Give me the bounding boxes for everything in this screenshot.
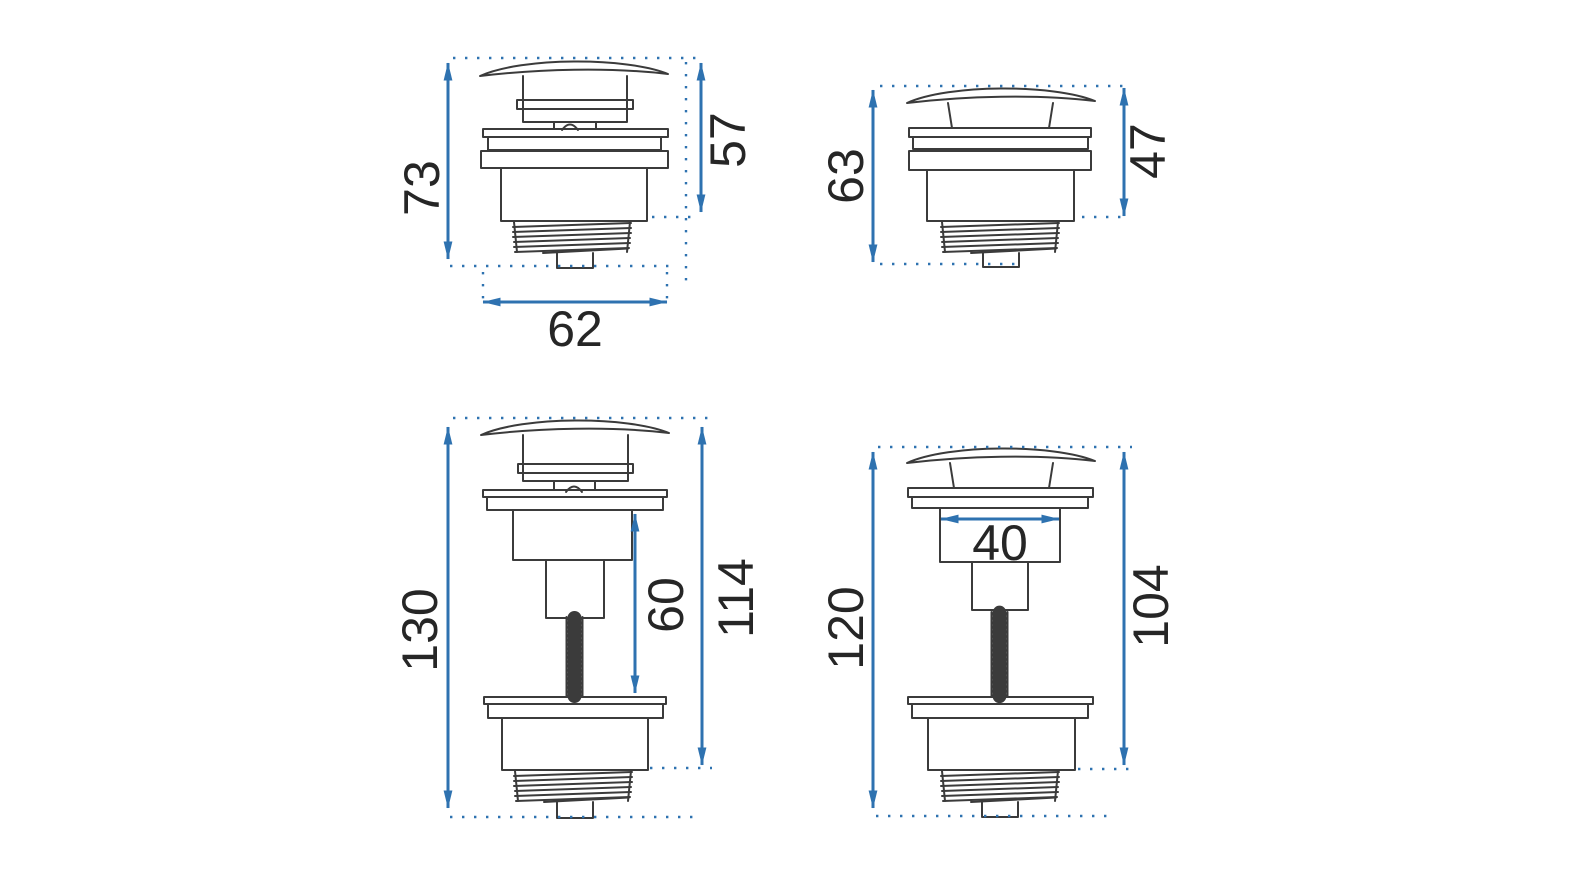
drawing-top-left: 73 57 62 bbox=[394, 58, 756, 357]
cap-dome bbox=[481, 420, 669, 435]
lower-flange-plate-2 bbox=[488, 704, 663, 718]
bottom-tab bbox=[557, 253, 593, 268]
flange-plate-1 bbox=[483, 129, 668, 137]
cap-cylinder bbox=[523, 435, 628, 481]
upper-body bbox=[513, 510, 632, 560]
threaded-stem bbox=[567, 617, 583, 697]
flange-plate-2 bbox=[488, 137, 661, 150]
dim-label-width: 62 bbox=[547, 301, 603, 357]
drawing-bottom-right: 120 40 104 bbox=[818, 447, 1179, 817]
dim-label-total-height: 63 bbox=[818, 148, 874, 204]
lower-housing bbox=[502, 718, 648, 770]
flange-plate-1 bbox=[909, 128, 1091, 137]
guide-lines-top-left bbox=[450, 58, 697, 301]
cap-cylinder bbox=[948, 103, 1053, 128]
bottom-tab bbox=[982, 802, 1018, 817]
screw-thread bbox=[941, 222, 1059, 253]
threaded-stem bbox=[992, 612, 1008, 697]
screw-thread bbox=[513, 222, 631, 253]
cap-dome bbox=[480, 61, 668, 76]
valve-housing bbox=[501, 168, 647, 221]
flange-plate-3 bbox=[909, 151, 1091, 170]
screw-thread bbox=[514, 771, 632, 802]
dim-label-upper-height: 114 bbox=[708, 558, 764, 638]
dim-label-upper-height: 47 bbox=[1120, 123, 1176, 179]
cap-ring bbox=[517, 100, 633, 109]
valve-body-top-right bbox=[907, 88, 1095, 267]
upper-flange-plate-2 bbox=[487, 497, 663, 510]
technical-drawing-page: 73 57 62 63 47 bbox=[0, 0, 1572, 877]
bottom-tab bbox=[557, 802, 593, 818]
cap-dome bbox=[907, 88, 1095, 103]
valve-body-bottom-right bbox=[907, 448, 1095, 817]
technical-drawing-canvas: 73 57 62 63 47 bbox=[0, 0, 1572, 877]
dim-label-upper-height: 104 bbox=[1123, 564, 1179, 647]
drawing-top-right: 63 47 bbox=[818, 86, 1176, 267]
dim-label-stem-length: 60 bbox=[638, 577, 694, 633]
upper-flange-plate-2 bbox=[912, 497, 1088, 508]
guide-lines-top-right bbox=[880, 86, 1130, 264]
dim-label-total-height: 120 bbox=[818, 586, 874, 669]
upper-flange-plate-1 bbox=[483, 490, 667, 497]
screw-thread bbox=[941, 771, 1059, 802]
drawing-bottom-left: 130 60 114 bbox=[392, 418, 764, 818]
valve-body-top-left bbox=[480, 61, 668, 268]
cap-cylinder bbox=[950, 463, 1053, 488]
lower-flange-plate-2 bbox=[912, 704, 1088, 718]
upper-flange-plate-1 bbox=[908, 488, 1093, 497]
valve-housing bbox=[927, 170, 1074, 221]
dim-label-upper-height: 57 bbox=[700, 112, 756, 168]
cap-ring bbox=[518, 464, 633, 473]
cap-dome bbox=[907, 448, 1095, 463]
dim-label-neck-width: 40 bbox=[972, 515, 1028, 571]
flange-plate-3 bbox=[481, 151, 668, 168]
flange-plate-2 bbox=[913, 137, 1088, 149]
neck-block bbox=[546, 560, 604, 618]
dim-label-total-height: 73 bbox=[394, 160, 450, 216]
lower-housing bbox=[928, 718, 1075, 770]
dim-label-total-height: 130 bbox=[392, 588, 448, 671]
